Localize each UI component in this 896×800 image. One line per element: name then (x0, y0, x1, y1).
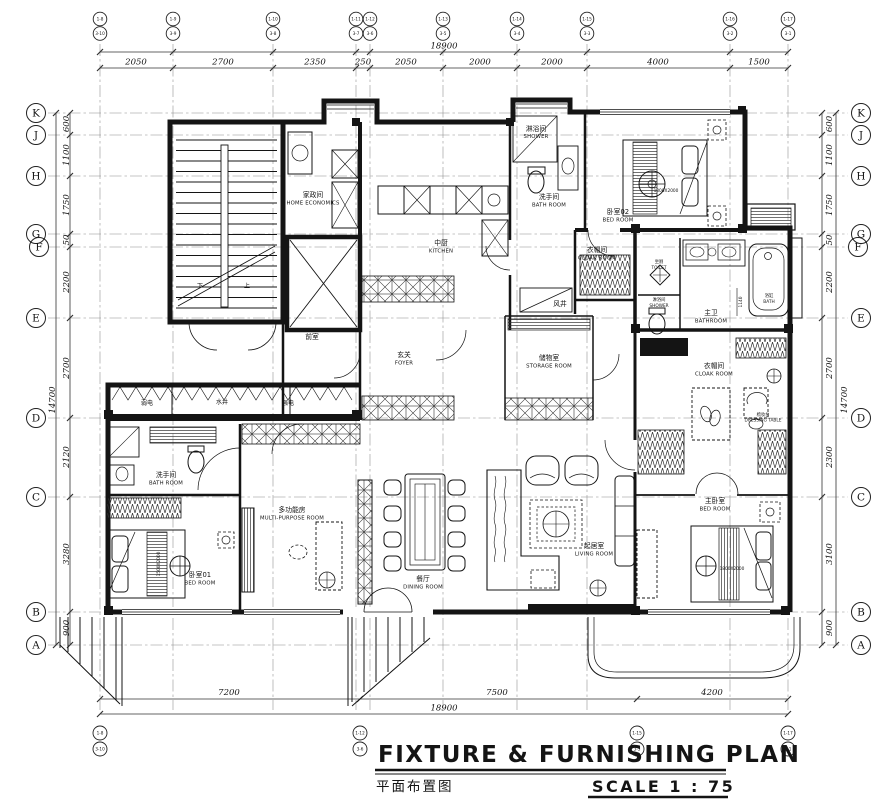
room-zh: 淋浴间 (526, 124, 547, 133)
bubble-label: 3-3 (584, 31, 591, 36)
room-zh: 玄关 (397, 350, 411, 359)
dim-left-2: 1750 (62, 194, 72, 216)
axis-right-E: E (857, 313, 865, 325)
axis-right-H: H (856, 171, 865, 183)
bubble-label: 1-9 (170, 17, 177, 22)
axis-right-G: G (857, 229, 865, 241)
dim-left-8: 900 (62, 619, 72, 636)
dim-top-8: 1500 (748, 58, 770, 68)
bubble-label: 3-5 (440, 31, 447, 36)
room-en: MULTI-PURPOSE ROOM (260, 516, 324, 522)
dim-left-1: 1100 (62, 144, 72, 166)
room-label-cloak-upper: 衣帽间CLOAK ROOM (578, 245, 616, 262)
dim-top-3: 250 (354, 58, 372, 68)
floor-plan-page: 2050 2700 2350 250 2050 2000 2000 4000 1… (0, 0, 896, 800)
dim-bottom-total: 18900 (430, 704, 458, 714)
axis-right-B: B (857, 607, 865, 619)
room-label-bathroom-top: 洗手间BATH ROOM (532, 192, 566, 209)
room-label-multipurpose: 多功能房MULTI-PURPOSE ROOM (260, 505, 324, 522)
bubble-label: 3-8 (270, 31, 277, 36)
dim-left-3: 50 (62, 234, 72, 245)
room-en: BATH ROOM (532, 203, 566, 209)
dim-bottom-2: 4200 (700, 688, 723, 698)
bed02-size-label: 1800X2000 (654, 188, 679, 194)
room-label-strong-electric: 强电 (282, 399, 294, 407)
dim-top-2: 2350 (303, 58, 326, 68)
room-zh: 起居室 (584, 541, 605, 550)
dim-top-1: 2700 (211, 58, 234, 68)
room-zh: 强电 (282, 399, 294, 407)
dim-right-4: 2200 (825, 271, 835, 294)
dim-right-0: 600 (825, 115, 835, 132)
dim-left-0: 600 (62, 115, 72, 132)
room-zh: 储物室 (539, 353, 560, 362)
bubble-label: 1-10 (268, 17, 278, 22)
room-en: STORAGE ROOM (526, 364, 572, 370)
dim-left-6: 2120 (62, 446, 72, 469)
plan-title-zh: 平面布置图 (376, 779, 454, 795)
axis-left-A: A (31, 640, 40, 652)
axis-left-J: J (33, 130, 38, 142)
dim-left-5: 2700 (62, 357, 72, 380)
bubble-label: 1-12 (365, 17, 375, 22)
floor-plan-drawing: 2050 2700 2350 250 2050 2000 2000 4000 1… (0, 0, 896, 800)
axis-left-D: D (32, 413, 40, 425)
room-en: TOILET (650, 265, 666, 271)
room-zh: 前室 (305, 332, 319, 341)
room-en: BATHROOM (695, 319, 727, 325)
dim-right-5: 2700 (825, 357, 835, 380)
room-label-kitchen: 中厨KITCHEN (429, 238, 453, 255)
bubble-label: 1-16 (725, 17, 735, 22)
room-zh: 坐厕 (655, 258, 664, 265)
room-label-bathroom-lower: 洗手间BATH ROOM (149, 470, 183, 487)
dim-bottom-1: 7500 (486, 688, 508, 698)
bubble-label: 1-12 (355, 731, 365, 736)
bubble-label: 3-10 (95, 747, 105, 752)
room-en: CLOAK ROOM (695, 372, 733, 378)
dim-top-4: 2050 (394, 58, 417, 68)
dim-right-8: 900 (825, 619, 835, 636)
room-label-bathtub: 浴缸BATH (763, 292, 774, 305)
room-label-shower-top: 淋浴间SHOWER (524, 124, 549, 140)
bubble-label: 1-8 (97, 731, 104, 736)
bubble-label: 3-7 (353, 31, 360, 36)
room-label-shower-master: 淋浴间SHOWER (649, 296, 668, 309)
room-zh: 多功能房 (278, 505, 305, 514)
room-zh: 家政间 (303, 190, 324, 199)
dim-left-total: 14700 (48, 386, 58, 414)
room-en: KITCHEN (429, 249, 453, 255)
axis-left-H: H (31, 171, 40, 183)
axis-left-B: B (32, 607, 40, 619)
dim-top-7: 4000 (646, 58, 669, 68)
room-label-anteroom: 前室 (305, 332, 319, 341)
bubble-label: 1-17 (783, 17, 793, 22)
room-zh: 洗手间 (156, 470, 177, 479)
bubble-label: 3-6 (367, 31, 374, 36)
dim-right-6: 2300 (825, 446, 835, 469)
stair-elevator (176, 140, 357, 350)
dim-top-total: 18900 (430, 42, 458, 52)
plan-scale: SCALE 1 : 75 (592, 777, 735, 796)
room-en: DINING ROOM (403, 585, 443, 591)
room-en: HOME ECONOMICS (286, 201, 340, 207)
bubble-label: 3-1 (785, 31, 792, 36)
room-label-weak-electric: 弱电 (141, 399, 153, 407)
dim-bottom-0: 7200 (218, 688, 240, 698)
room-en: DRESSING TABLE (745, 418, 782, 424)
room-zh: 水井 (216, 398, 228, 406)
bubble-label: 3-4 (514, 31, 521, 36)
dim-top-5: 2000 (468, 58, 491, 68)
dim-right-total: 14700 (840, 386, 850, 414)
room-en: CLOAK ROOM (578, 256, 616, 262)
room-zh: 餐厅 (416, 574, 430, 583)
room-label-foyer: 玄关FOYER (395, 350, 413, 367)
axis-left-K: K (32, 108, 40, 120)
room-label-water-shaft: 水井 (216, 398, 228, 406)
room-label-toilet: 坐厕TOILET (650, 258, 666, 271)
room-label-cloak-master: 衣帽间CLOAK ROOM (695, 361, 733, 378)
room-label-storage: 储物室STORAGE ROOM (526, 353, 572, 370)
room-label-living: 起居室LIVING ROOM (575, 541, 613, 558)
room-en: SHOWER (649, 303, 668, 309)
room-label-master-bedroom: 主卧室BED ROOM (700, 496, 731, 513)
title-block: FIXTURE & FURNISHING PLAN 平面布置图 SCALE 1 … (375, 742, 800, 797)
room-label-dressing-table: 梳妆台DRESSING TABLE (745, 411, 782, 424)
dim-right-3: 50 (825, 234, 835, 245)
dim-right-2: 1750 (825, 194, 835, 216)
axis-right-A: A (856, 640, 865, 652)
bubble-label: 1-15 (632, 731, 642, 736)
room-en: BED ROOM (185, 581, 216, 587)
axis-left-G: G (32, 229, 40, 241)
furniture (107, 116, 788, 602)
bed01-size-label: 1500X2000 (156, 551, 162, 576)
room-zh: 洗手间 (539, 192, 560, 201)
windows (122, 104, 770, 617)
room-zh: 衣帽间 (587, 245, 608, 254)
room-zh: 中厨 (434, 238, 448, 247)
room-en: LIVING ROOM (575, 552, 613, 558)
dim-left-7: 3280 (62, 543, 72, 565)
room-zh: 卧室01 (189, 570, 211, 579)
room-zh: 梳妆台 (757, 411, 770, 418)
room-en: SHOWER (524, 134, 549, 140)
dim-top-6: 2000 (540, 58, 563, 68)
room-label-master-bath: 主卫BATHROOM (695, 308, 727, 325)
room-label-bedroom02: 卧室02BED ROOM (603, 207, 634, 224)
room-en: BATH ROOM (149, 481, 183, 487)
axis-right-J: J (858, 130, 863, 142)
room-en: BED ROOM (700, 507, 731, 513)
stair-down-label: 下 (197, 283, 203, 290)
room-label-dining: 餐厅DINING ROOM (403, 574, 443, 591)
room-zh: 主卫 (704, 308, 718, 317)
room-label-wind-shaft: 风井 (553, 299, 567, 308)
dim-right-1: 1100 (825, 144, 835, 166)
stair-up-label: 上 (244, 282, 250, 290)
axis-right-K: K (857, 108, 865, 120)
room-en: BATH (763, 299, 774, 305)
room-zh: 主卧室 (705, 496, 726, 505)
dim-left-4: 2200 (62, 271, 72, 294)
axis-left-F: F (35, 242, 42, 254)
room-zh: 弱电 (141, 399, 153, 407)
bubble-label: 1-8 (97, 17, 104, 22)
room-zh: 淋浴间 (653, 296, 666, 303)
axis-right-C: C (857, 492, 865, 504)
bubble-label: 1-11 (351, 17, 361, 22)
bubble-label: 1-17 (783, 731, 793, 736)
room-zh: 卧室02 (607, 207, 629, 216)
room-label-bedroom01: 卧室01BED ROOM (185, 570, 216, 587)
axis-right-D: D (857, 413, 865, 425)
dim-right-7: 3100 (825, 543, 835, 565)
axis-left-C: C (32, 492, 40, 504)
dim-top-0: 2050 (124, 58, 147, 68)
bubble-label: 1-14 (512, 17, 522, 22)
bubble-label: 1-15 (582, 17, 592, 22)
master-bed-size-label: 1800X2000 (720, 566, 745, 572)
room-zh: 风井 (553, 299, 567, 308)
bath-dim-label: 1140 (738, 296, 744, 307)
room-en: BED ROOM (603, 218, 634, 224)
axis-right-F: F (854, 242, 861, 254)
bubble-label: 3-2 (727, 31, 734, 36)
bubble-label: 3-9 (170, 31, 177, 36)
bubble-label: 3-10 (95, 31, 105, 36)
plan-title: FIXTURE & FURNISHING PLAN (378, 742, 800, 768)
room-zh: 浴缸 (765, 292, 774, 299)
room-en: FOYER (395, 361, 413, 367)
room-zh: 衣帽间 (704, 361, 725, 370)
axis-left-E: E (32, 313, 40, 325)
bubble-label: 1-13 (438, 17, 448, 22)
bubble-label: 3-6 (357, 747, 364, 752)
